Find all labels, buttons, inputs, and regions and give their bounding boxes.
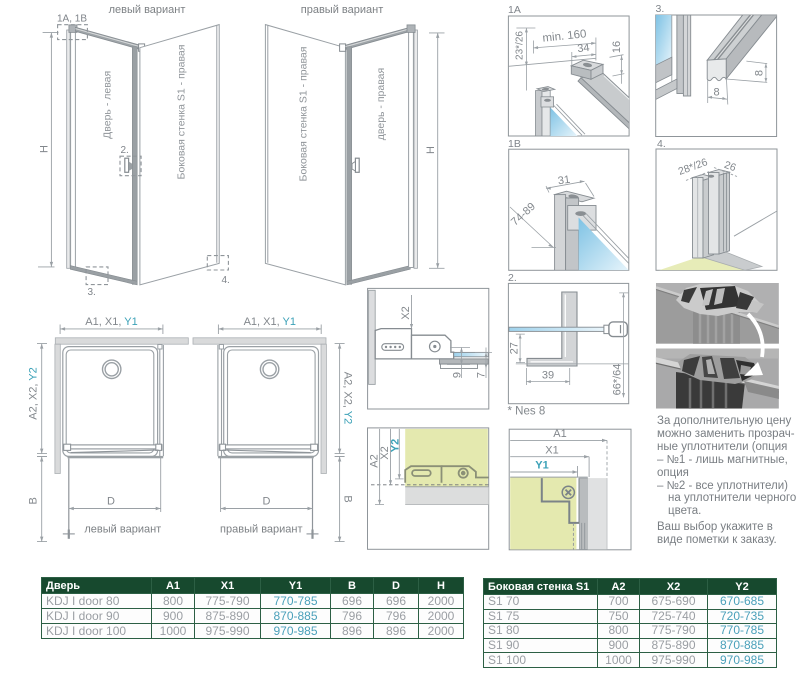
svg-text:8: 8 xyxy=(754,70,766,76)
svg-text:A2, X2, Y2: A2, X2, Y2 xyxy=(342,372,354,424)
svg-text:A2, X2, Y2: A2, X2, Y2 xyxy=(28,367,40,419)
svg-text:D: D xyxy=(107,496,115,508)
svg-text:39: 39 xyxy=(542,370,554,382)
svg-text:Боковая стенка S1 - правая: Боковая стенка S1 - правая xyxy=(176,45,188,180)
svg-text:Y2: Y2 xyxy=(390,439,402,452)
svg-text:66*/64: 66*/64 xyxy=(611,364,623,396)
svg-text:A1, X1, Y1: A1, X1, Y1 xyxy=(244,316,296,328)
svg-text:4.: 4. xyxy=(222,275,230,286)
svg-text:X2: X2 xyxy=(400,306,412,319)
svg-text:74-89: 74-89 xyxy=(509,201,538,229)
svg-text:1A: 1A xyxy=(508,4,521,16)
svg-text:8: 8 xyxy=(713,87,719,99)
svg-text:дверь - правая: дверь - правая xyxy=(375,68,387,140)
svg-text:3.: 3. xyxy=(88,287,96,298)
svg-text:Y1: Y1 xyxy=(535,460,548,472)
svg-text:3.: 3. xyxy=(656,3,665,15)
svg-text:7: 7 xyxy=(476,372,488,378)
svg-text:1A, 1B: 1A, 1B xyxy=(57,14,87,25)
svg-text:34: 34 xyxy=(577,42,590,55)
svg-text:левый вариант: левый вариант xyxy=(84,524,161,536)
svg-text:X1: X1 xyxy=(545,444,558,456)
svg-text:31: 31 xyxy=(557,174,571,188)
svg-text:Дверь - левая: Дверь - левая xyxy=(102,71,114,139)
svg-text:* Nes 8: * Nes 8 xyxy=(508,406,546,418)
svg-text:2.: 2. xyxy=(121,145,129,156)
svg-text:B: B xyxy=(342,495,354,502)
svg-text:B: B xyxy=(28,497,40,504)
svg-text:правый вариант: правый вариант xyxy=(220,524,302,536)
svg-text:9: 9 xyxy=(452,372,464,378)
svg-text:1B: 1B xyxy=(508,138,521,150)
svg-text:H: H xyxy=(39,145,51,153)
svg-text:A1: A1 xyxy=(553,428,566,440)
svg-text:A1, X1, Y1: A1, X1, Y1 xyxy=(85,316,137,328)
svg-text:4.: 4. xyxy=(657,138,666,150)
svg-text:23*/26: 23*/26 xyxy=(515,31,526,60)
svg-text:16: 16 xyxy=(611,41,623,53)
svg-text:D: D xyxy=(263,496,271,508)
svg-text:27: 27 xyxy=(509,342,521,354)
svg-text:H: H xyxy=(425,146,437,154)
svg-text:Боковая стенка S1 - правая: Боковая стенка S1 - правая xyxy=(298,47,310,182)
svg-text:2.: 2. xyxy=(508,272,517,284)
